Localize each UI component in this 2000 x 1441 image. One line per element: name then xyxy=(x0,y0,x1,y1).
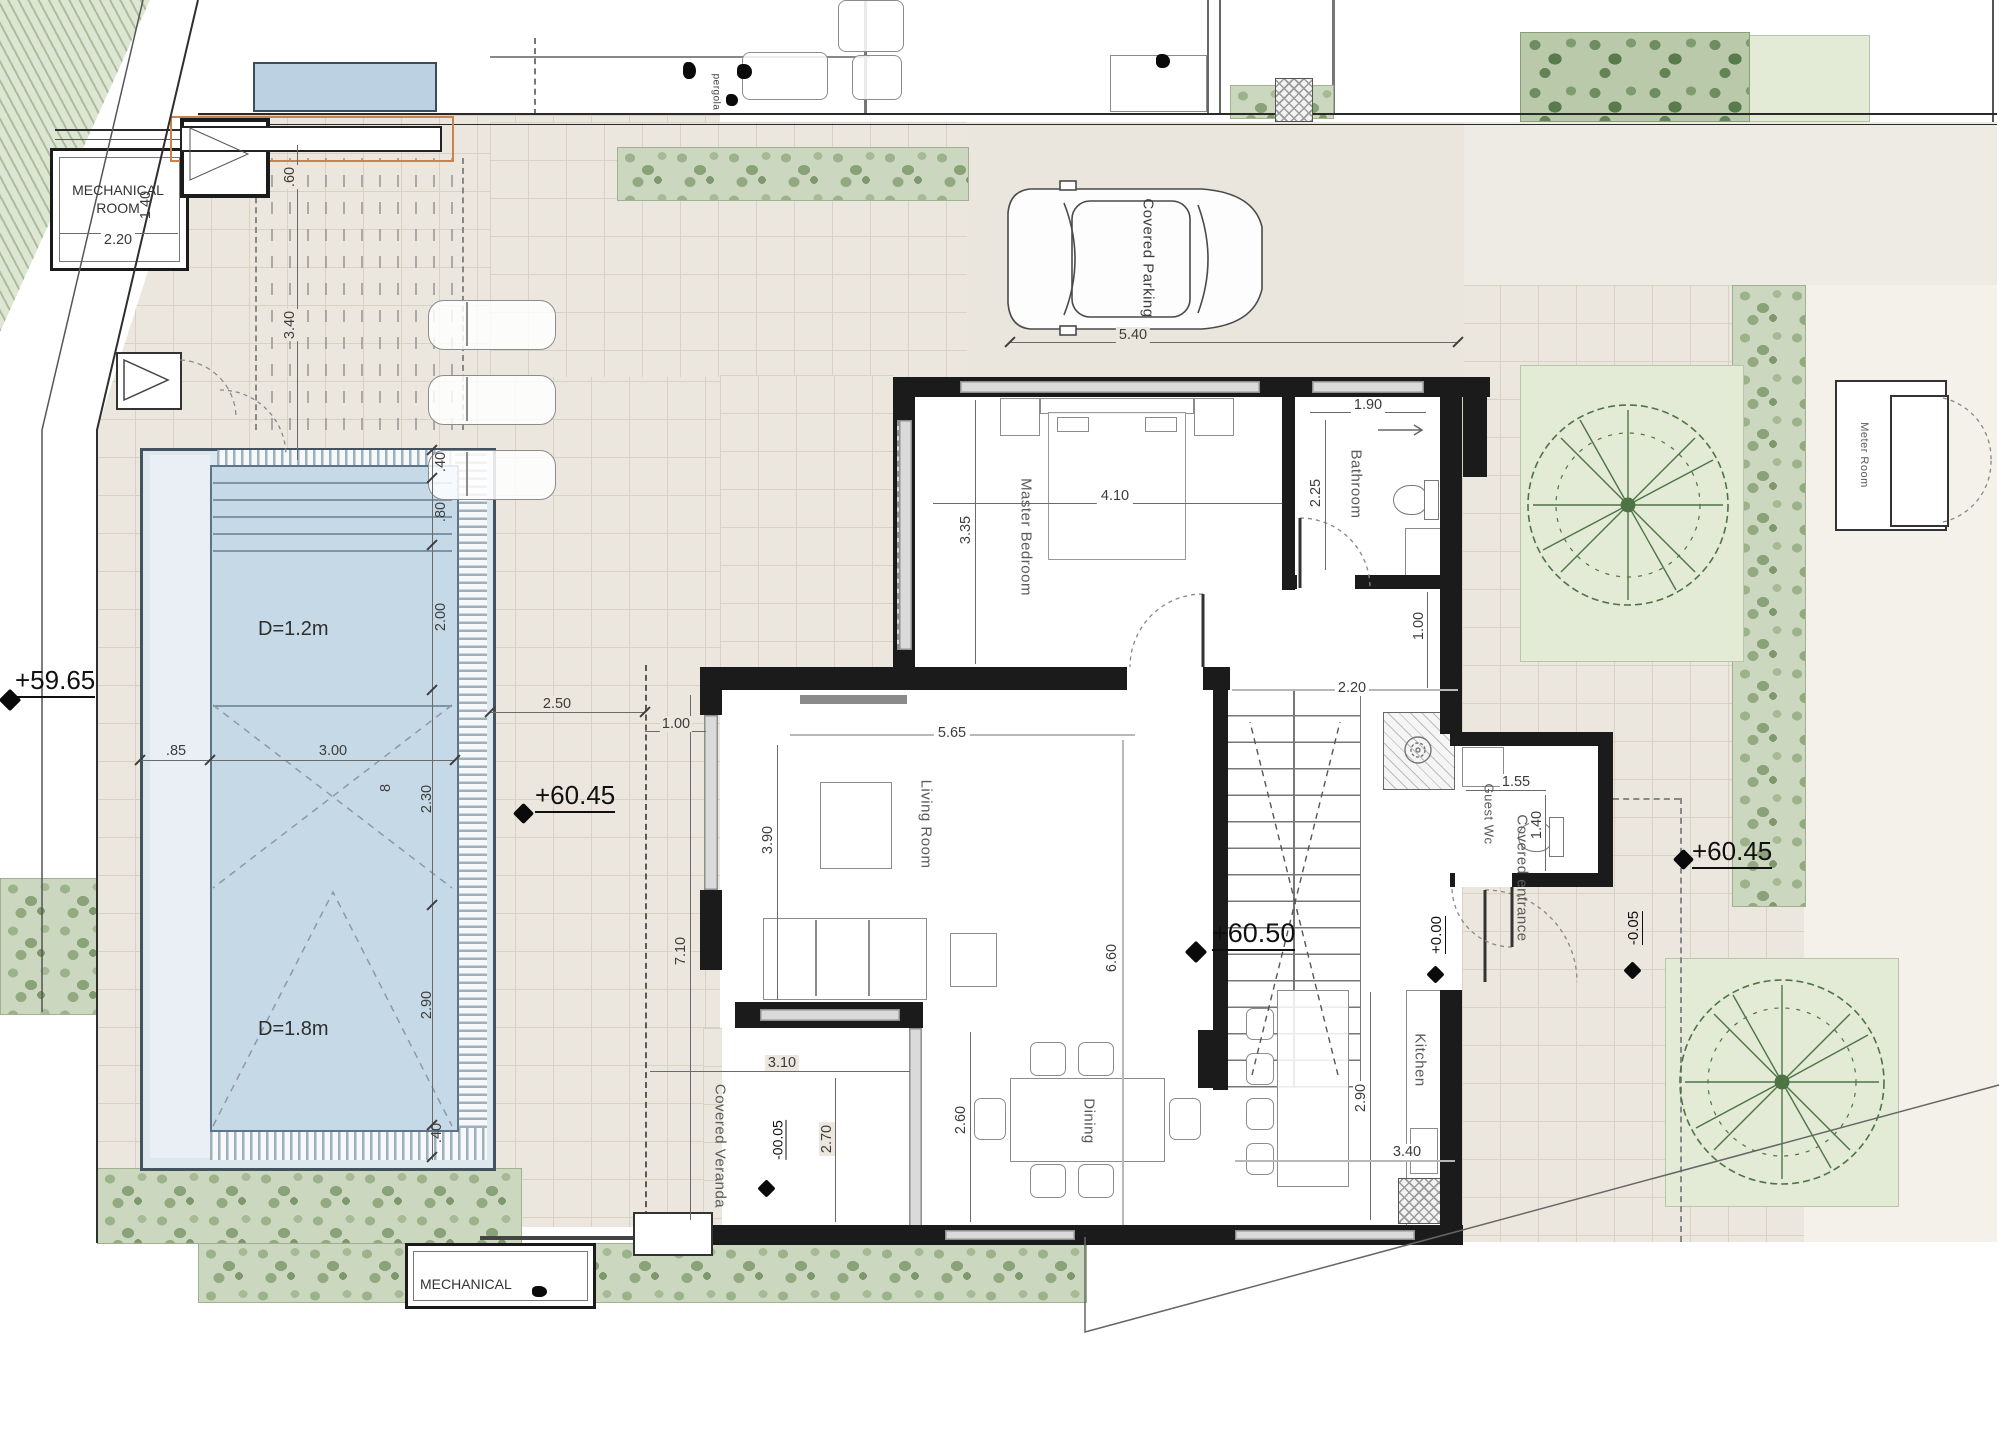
dining-south-window xyxy=(945,1230,1075,1240)
dim-line-light xyxy=(1235,1160,1455,1162)
dim-wc-width: 1.55 xyxy=(1500,774,1532,790)
dim-bath-depth: 2.25 xyxy=(1308,476,1324,510)
dining-chair xyxy=(1169,1098,1201,1140)
master-bedroom-label: Master Bedroom xyxy=(1018,478,1035,596)
dim-living-depth: 3.90 xyxy=(760,823,776,857)
right-edge-line xyxy=(1992,0,1994,122)
wc-toilet-tank xyxy=(1549,817,1564,857)
dining-chair xyxy=(974,1098,1006,1140)
neighbour-sofa xyxy=(742,52,828,100)
dim-terrace-walk: 1.00 xyxy=(660,716,692,732)
east-wall-upper xyxy=(1440,397,1462,692)
living-west-pier2 xyxy=(700,890,722,970)
dim-line xyxy=(1370,992,1371,1220)
pool-tile-edge-right xyxy=(455,450,487,1160)
neighbour-wall xyxy=(1207,0,1221,114)
level-interior: +60.50 xyxy=(1212,918,1295,949)
east-wall-lower xyxy=(1440,990,1462,1245)
dim-pool-steps: .80 xyxy=(433,502,449,522)
dim-living-total: 7.10 xyxy=(673,934,689,968)
dim-pool-side: .85 xyxy=(163,743,189,759)
pool-tile-edge-bottom xyxy=(210,1128,487,1160)
pool-step xyxy=(213,516,452,518)
bedroom-door-opening xyxy=(1127,667,1203,690)
survey-mark-icon xyxy=(532,1286,547,1297)
pool-depth-shallow-label: D=1.2m xyxy=(258,618,329,641)
pool-step xyxy=(213,533,452,535)
pool-step xyxy=(213,482,452,484)
veranda-east-glass xyxy=(909,1028,922,1227)
dim-kitchen-width: 3.40 xyxy=(1390,1144,1424,1160)
top-right-planter xyxy=(1748,35,1870,122)
dashed-setback-line xyxy=(534,38,536,115)
dim-line xyxy=(975,400,976,664)
dim-line xyxy=(690,695,691,1220)
level-entry-zero: +0.00 xyxy=(1428,916,1446,954)
dim-open-depth: 6.60 xyxy=(1104,941,1120,975)
pool-bottom-hedge xyxy=(97,1168,522,1244)
bathroom-sink xyxy=(1405,528,1443,576)
sun-lounger xyxy=(428,375,556,425)
mechanical-room-label: MECHANICAL ROOM xyxy=(62,182,174,217)
wc-sink xyxy=(1462,747,1504,787)
dim-bedroom-width: 4.10 xyxy=(1097,488,1133,504)
kitchen-island xyxy=(1277,990,1349,1187)
dim-parking-width: 5.40 xyxy=(1116,327,1150,343)
kitchen-south-window xyxy=(1235,1230,1415,1240)
wc-north-wall xyxy=(1450,732,1613,746)
dim-line-light xyxy=(1122,740,1124,1225)
covered-veranda-label: Covered Veranda xyxy=(712,1084,729,1208)
dim-planter-width: .60 xyxy=(282,165,298,189)
living-south-window xyxy=(760,1009,900,1021)
pool-walkway xyxy=(150,455,210,1158)
dim-terrace-gap: 2.50 xyxy=(540,696,574,712)
wc-east-wall xyxy=(1598,732,1613,887)
neighbour-sofa xyxy=(838,0,904,52)
neighbour-grill-tile xyxy=(1275,78,1313,122)
bed xyxy=(1048,412,1186,560)
northeast-stub xyxy=(1463,377,1487,477)
sun-lounger xyxy=(428,300,556,350)
floor-plan: pergola MECHANICAL ROOM 2.20 1.40 .60 3.… xyxy=(0,0,2000,1441)
dim-line xyxy=(835,1078,836,1222)
lounger-fold-line xyxy=(466,377,468,421)
level-veranda-minus: -00.05 xyxy=(770,1120,787,1160)
dining-chair xyxy=(1030,1042,1066,1076)
lounger-fold-line xyxy=(466,452,468,496)
dim-line xyxy=(490,712,645,713)
dim-bath-width: 1.90 xyxy=(1351,397,1385,413)
pool-section-line xyxy=(213,705,452,707)
dim-line xyxy=(1466,790,1546,791)
sofa xyxy=(763,918,927,1000)
entrance-roof-dashed-h xyxy=(1613,798,1680,800)
dim-mech-height: 1.40 xyxy=(138,191,154,219)
bar-stool xyxy=(1246,1098,1274,1130)
dining-chair xyxy=(1078,1164,1114,1198)
dining-chair xyxy=(1078,1042,1114,1076)
neighbour-sofa xyxy=(852,55,902,100)
dim-mech-width: 2.20 xyxy=(101,232,135,248)
east-of-pool-terrace xyxy=(720,375,893,670)
bathroom-toilet-tank xyxy=(1424,480,1439,520)
east-tree-planter xyxy=(1520,365,1744,662)
top-hedge xyxy=(617,147,969,201)
dim-pool-mid: 2.30 xyxy=(419,785,435,813)
bar-stool xyxy=(1246,1008,1274,1040)
guest-wc-label: Guest Wc xyxy=(1482,783,1497,844)
pool-step xyxy=(213,550,452,552)
survey-mark-icon xyxy=(726,94,738,106)
bed-pillow xyxy=(1057,417,1089,432)
dim-living-width: 5.65 xyxy=(934,725,970,741)
covered-parking-label: Covered Parking xyxy=(1140,198,1157,317)
meter-room-label: Meter Room xyxy=(1858,422,1870,488)
sofa-cushion-line xyxy=(868,920,870,996)
dim-hall-length: 2.20 xyxy=(1335,680,1369,696)
bar-stool xyxy=(1246,1143,1274,1175)
bedroom-north-window xyxy=(960,381,1260,393)
bedroom-west-window xyxy=(897,420,912,650)
living-room-label: Living Room xyxy=(918,780,935,869)
dim-line xyxy=(970,1032,971,1222)
parking-slab xyxy=(967,122,1464,377)
dim-line xyxy=(777,745,778,1000)
dim-line xyxy=(140,760,455,761)
gate xyxy=(116,352,182,410)
bath-door-opening xyxy=(1297,575,1355,589)
survey-mark-icon xyxy=(737,64,752,79)
dim-pool-width: 3.00 xyxy=(316,743,350,759)
pool-depth-deep-label: D=1.8m xyxy=(258,1018,329,1041)
kitchen-label: Kitchen xyxy=(1412,1033,1429,1087)
upper-pool xyxy=(253,62,437,112)
level-road: +59.65 xyxy=(15,665,95,696)
sofa-cushion-line xyxy=(815,920,817,996)
bathroom-north-window xyxy=(1312,381,1424,393)
dim-veranda-depth: 2.70 xyxy=(819,1122,835,1156)
tv-console xyxy=(800,695,907,704)
north-boundary-wall xyxy=(198,113,1997,125)
dim-line xyxy=(1427,592,1428,688)
living-west-window xyxy=(704,715,718,890)
bath-partition xyxy=(1282,397,1295,590)
level-terrace-east: +60.45 xyxy=(1692,836,1772,867)
meter-room-door-panel xyxy=(1890,395,1949,527)
dim-pool-edge-bottom: .40 xyxy=(429,1123,445,1143)
southeast-tree-planter xyxy=(1665,958,1899,1207)
dim-line xyxy=(1325,420,1326,570)
dim-pool-deep: 2.90 xyxy=(419,991,435,1019)
side-table xyxy=(950,933,997,987)
dim-hall-width: 1.00 xyxy=(1411,610,1427,642)
left-outside-hedge xyxy=(0,878,97,1015)
survey-mark-icon xyxy=(683,62,696,79)
top-right-tree-row xyxy=(1520,32,1750,122)
lounger-fold-line xyxy=(466,302,468,346)
wc-door-opening xyxy=(1455,873,1512,887)
nightstand xyxy=(1194,398,1234,436)
level-terrace-west: +60.45 xyxy=(535,780,615,811)
nightstand xyxy=(1000,398,1040,436)
living-west-pier xyxy=(700,667,722,715)
dim-line xyxy=(1545,795,1546,871)
dim-bedroom-depth: 3.35 xyxy=(958,513,974,547)
dim-pergola-length: 3.40 xyxy=(282,309,298,341)
level-entrance-minus: -0.05 xyxy=(1625,911,1643,945)
bathroom-label: Bathroom xyxy=(1348,449,1365,518)
shower-door-triangle xyxy=(188,126,254,182)
top-right-driveway xyxy=(1464,122,1997,285)
terrace-dashed-line xyxy=(645,665,647,1227)
veranda-step-box xyxy=(633,1212,713,1256)
mechanical-label: MECHANICAL xyxy=(420,1276,512,1292)
dim-veranda-width: 3.10 xyxy=(765,1055,799,1071)
dim-dining-width: 2.60 xyxy=(953,1103,969,1137)
covered-entrance-label: Covered entrance xyxy=(1514,814,1531,941)
dim-pool-length: 8 xyxy=(378,784,394,792)
dim-pool-shallow: 2.00 xyxy=(433,603,449,631)
dim-line xyxy=(1010,342,1458,343)
bed-pillow xyxy=(1145,417,1177,432)
dining-chair xyxy=(1030,1164,1066,1198)
survey-mark-icon xyxy=(1156,54,1170,68)
stair-pier xyxy=(1198,1030,1222,1088)
dim-line xyxy=(650,1071,910,1072)
dim-wc-depth: 1.40 xyxy=(1529,809,1545,841)
coffee-table xyxy=(820,782,892,869)
dim-line xyxy=(297,145,298,460)
dim-pool-edge-top: .40 xyxy=(433,452,449,472)
bar-stool xyxy=(1246,1053,1274,1085)
pergola-label: pergola xyxy=(711,74,722,111)
dining-label: Dining xyxy=(1081,1098,1098,1144)
east-wall-mid xyxy=(1440,692,1462,734)
dim-kitchen-depth: 2.90 xyxy=(1353,1081,1369,1115)
pool-step xyxy=(213,499,452,501)
bathroom-toilet xyxy=(1393,485,1427,515)
